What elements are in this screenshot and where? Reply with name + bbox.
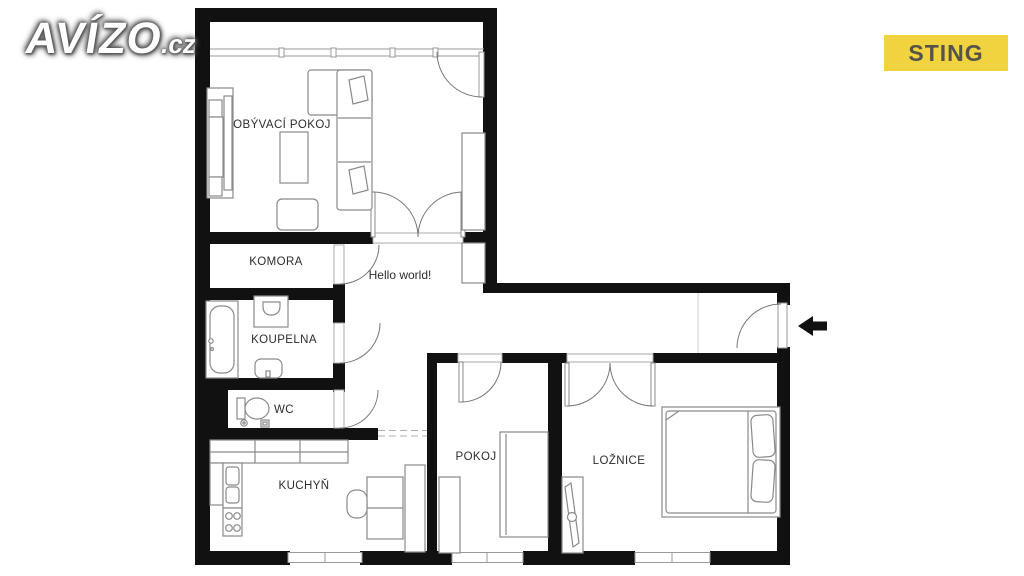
floorplan-svg: OBÝVACÍ POKOJ KOMORA KOUPELNA WC KUCHYŇ … bbox=[0, 0, 1024, 576]
living-room-furniture bbox=[207, 70, 485, 230]
room-label-wc: WC bbox=[274, 404, 294, 416]
wc-fixtures bbox=[237, 398, 269, 427]
entrance-arrow-icon bbox=[798, 316, 827, 336]
avizo-logo-suffix: .cz bbox=[159, 29, 198, 59]
room-label-pokoj: POKOJ bbox=[456, 451, 497, 463]
bedroom-furniture bbox=[562, 407, 780, 553]
avizo-logo-text: AVÍZO bbox=[22, 14, 166, 63]
room-label-komora: KOMORA bbox=[249, 256, 303, 268]
floorplan-page: OBÝVACÍ POKOJ KOMORA KOUPELNA WC KUCHYŇ … bbox=[0, 0, 1024, 576]
room-label-obyvaci-pokoj: OBÝVACÍ POKOJ bbox=[233, 118, 331, 131]
room-label-loznice: LOŽNICE bbox=[593, 454, 646, 467]
hall-closet bbox=[462, 243, 485, 283]
kitchen-furniture bbox=[210, 440, 425, 552]
sting-badge: STING bbox=[884, 35, 1008, 71]
room-label-koupelna: KOUPELNA bbox=[251, 334, 317, 346]
hello-world-annotation: Hello world! bbox=[369, 268, 432, 282]
avizo-logo: AVÍZO.cz bbox=[22, 14, 201, 64]
room-label-kuchyn: KUCHYŇ bbox=[279, 479, 330, 492]
